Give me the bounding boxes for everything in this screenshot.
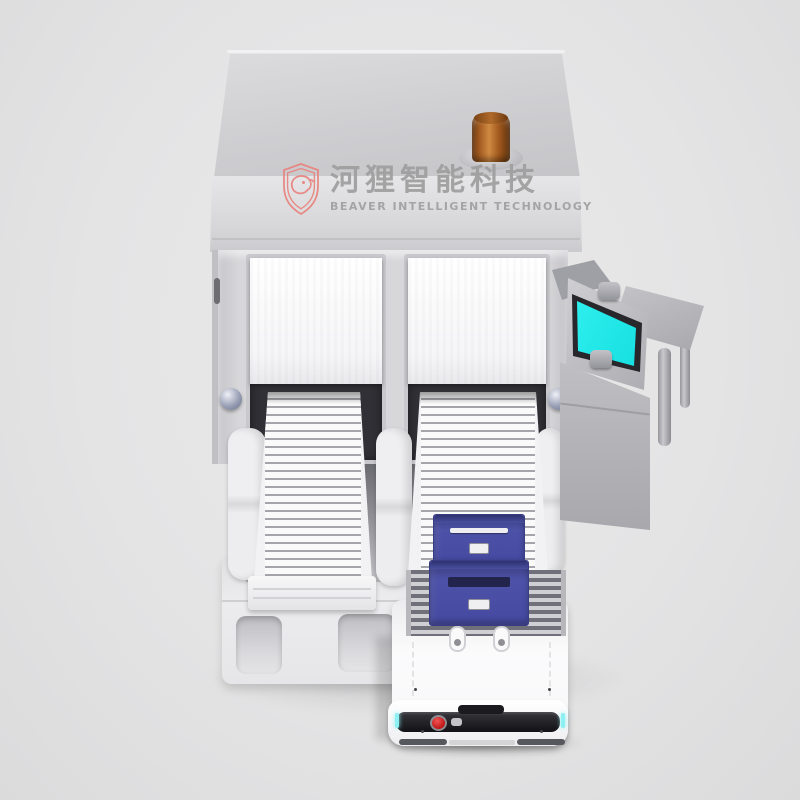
- tote-label-chip: [468, 599, 490, 610]
- dome-button-left: [220, 388, 242, 410]
- left-ramp-end-stop: [248, 576, 376, 610]
- brand-watermark: 河狸智能科技 BEAVER INTELLIGENT TECHNOLOGY: [281, 158, 561, 220]
- tote-handle-slot: [448, 577, 510, 587]
- left-roller-ramp: [252, 392, 374, 580]
- agv-corner-light-left: [395, 713, 399, 728]
- agv-keyhole-marker: [493, 626, 510, 652]
- agv-screw-dot: [548, 688, 551, 691]
- agv-keyhole-marker: [449, 626, 466, 652]
- upper-blue-tote: [433, 514, 525, 566]
- lower-blue-tote: [429, 560, 529, 626]
- table-leg-front: [658, 348, 671, 446]
- ramp-top-shadow: [252, 392, 374, 404]
- beaver-shield-icon: [281, 163, 321, 215]
- agv-sensor-slot: [458, 705, 504, 714]
- brand-text-block: 河狸智能科技 BEAVER INTELLIGENT TECHNOLOGY: [330, 165, 593, 213]
- tote-label-strip: [450, 528, 508, 533]
- brand-name-en: BEAVER INTELLIGENT TECHNOLOGY: [330, 200, 593, 213]
- agv-aux-button: [451, 718, 462, 726]
- agv-corner-light-right: [561, 713, 565, 728]
- agv-bumper-left: [399, 739, 447, 745]
- agv-sensor-visor: [396, 712, 560, 732]
- screen-clamp-bottom: [590, 350, 612, 368]
- support-foot-center: [376, 428, 412, 586]
- dock-notch: [236, 616, 282, 674]
- ramp-top-shadow: [408, 392, 548, 404]
- emergency-stop-button: [430, 715, 447, 731]
- agv-bumper-right: [517, 739, 565, 745]
- cabinet-top-edge: [227, 50, 565, 53]
- agv-screw-dot: [414, 688, 417, 691]
- end-stop-lines: [253, 581, 371, 605]
- fascia-groove: [212, 238, 580, 240]
- shutter-texture: [250, 258, 382, 384]
- tote-rim: [430, 561, 528, 569]
- beacon-cap: [474, 112, 508, 124]
- brand-name-cn: 河狸智能科技: [330, 165, 593, 197]
- agv-screw-dot: [540, 730, 543, 733]
- tote-rim: [434, 515, 524, 523]
- tote-label-chip: [469, 543, 489, 554]
- agv-bumper-center: [449, 740, 515, 745]
- roller-stripes: [265, 392, 361, 580]
- screen-clamp-top: [598, 282, 620, 300]
- shutter-texture: [408, 258, 546, 384]
- side-recess-handle: [214, 278, 220, 304]
- agv-screw-dot: [421, 730, 424, 733]
- product-render-scene: 河狸智能科技 BEAVER INTELLIGENT TECHNOLOGY: [0, 0, 800, 800]
- console-groove: [560, 403, 650, 416]
